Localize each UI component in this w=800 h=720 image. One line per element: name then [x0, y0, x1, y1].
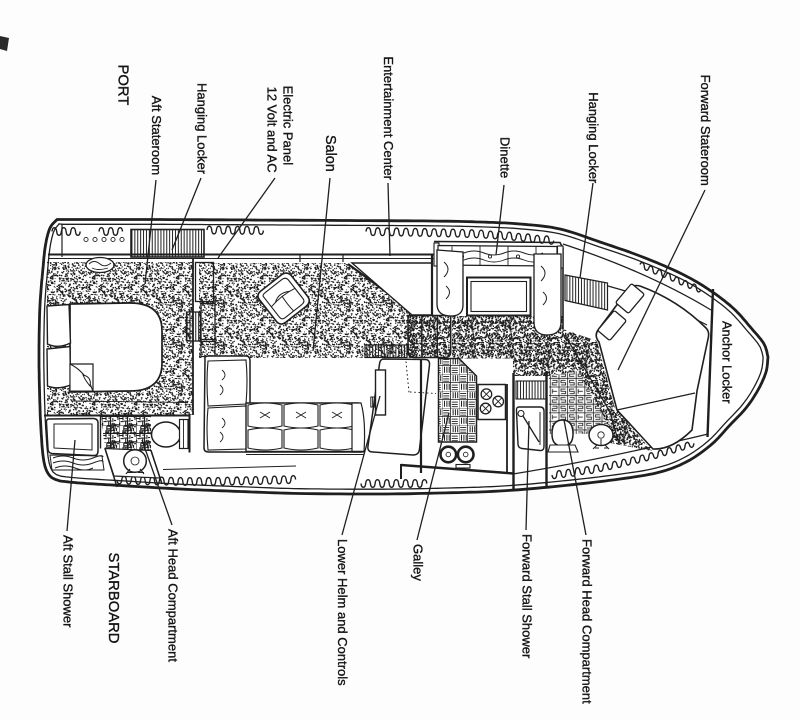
svg-text:Hanging Locker: Hanging Locker: [586, 92, 601, 184]
svg-text:Forward Stall Shower: Forward Stall Shower: [520, 534, 535, 659]
svg-text:Forward Head Compartment: Forward Head Compartment: [580, 539, 595, 704]
svg-text:PORT: PORT: [115, 65, 131, 106]
svg-text:Anchor Locker: Anchor Locker: [720, 321, 735, 404]
svg-text:Aft Stall Shower: Aft Stall Shower: [61, 535, 76, 628]
svg-text:Electric Panel: Electric Panel: [281, 86, 296, 166]
svg-text:Aft Stateroom: Aft Stateroom: [149, 96, 164, 175]
svg-text:Forward Stateroom: Forward Stateroom: [698, 75, 713, 186]
svg-text:12 Volt and AC: 12 Volt and AC: [265, 87, 280, 173]
svg-text:Entertainment Center: Entertainment Center: [381, 56, 396, 180]
svg-text:Aft Head Compartment: Aft Head Compartment: [166, 529, 181, 662]
svg-text:Galley: Galley: [411, 544, 426, 581]
svg-text:Salon: Salon: [322, 135, 338, 172]
svg-text:Dinette: Dinette: [497, 137, 512, 178]
svg-text:Lower Helm and Controls: Lower Helm and Controls: [335, 539, 350, 686]
svg-text:Hanging Locker: Hanging Locker: [195, 83, 210, 175]
svg-text:STARBOARD: STARBOARD: [105, 553, 121, 644]
